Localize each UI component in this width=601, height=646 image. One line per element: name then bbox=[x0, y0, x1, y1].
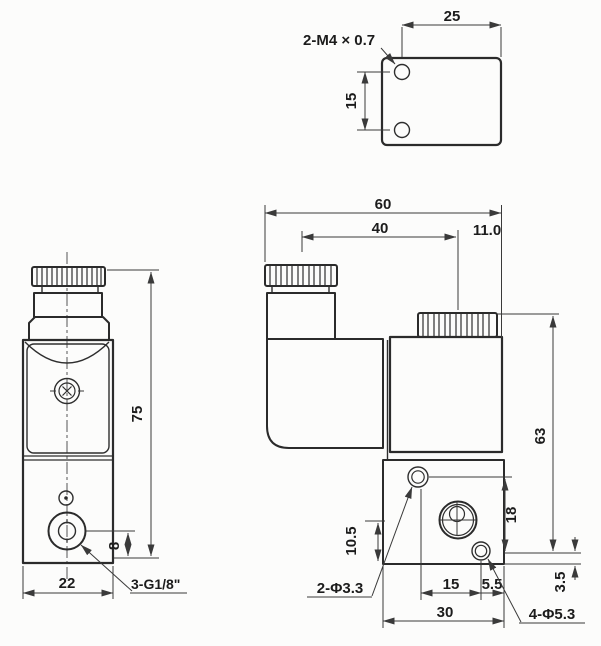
dim-60-label: 60 bbox=[375, 196, 392, 213]
top-view-dimensions: 25 15 2-M4 × 0.7 bbox=[303, 8, 501, 130]
thread-callout-label: 2-M4 × 0.7 bbox=[303, 32, 375, 49]
side-connector-neck bbox=[272, 286, 329, 293]
front-body bbox=[23, 340, 113, 563]
front-pilot-hole-dot bbox=[64, 496, 68, 500]
top-view-thread-hole-1 bbox=[395, 65, 410, 80]
front-body-seam bbox=[23, 456, 113, 460]
dim-22-label: 22 bbox=[59, 575, 76, 592]
side-pilot-hole-inner bbox=[412, 471, 424, 483]
side-coil-cap bbox=[418, 313, 497, 337]
top-view bbox=[382, 58, 501, 145]
dim-11-label: 11.0 bbox=[473, 222, 501, 239]
side-connector-cap-knurl bbox=[270, 266, 331, 285]
dim-40-label: 40 bbox=[372, 220, 389, 237]
front-cap-knurl-lines bbox=[37, 268, 101, 285]
dim-30-label: 30 bbox=[437, 604, 454, 621]
technical-drawing-page: 25 15 2-M4 × 0.7 75 bbox=[0, 0, 601, 646]
dim-25-extension-lines bbox=[402, 27, 501, 57]
dim-18-label: 18 bbox=[503, 507, 520, 524]
dim-105-label: 10.5 bbox=[343, 526, 360, 555]
side-connector-housing bbox=[267, 339, 383, 448]
dim-8-label: 8 bbox=[106, 542, 123, 550]
dim-75-label: 75 bbox=[129, 406, 146, 423]
dim-15-label: 15 bbox=[343, 93, 360, 110]
front-connector-cap bbox=[32, 267, 105, 286]
dim-25-label: 25 bbox=[444, 8, 461, 25]
front-connector-base bbox=[29, 317, 109, 340]
dim-55-label: 5.5 bbox=[482, 576, 503, 593]
dim-35-label: 3.5 bbox=[552, 572, 569, 593]
dim-63-label: 63 bbox=[532, 428, 549, 445]
port-callout-leader bbox=[81, 545, 132, 591]
front-connector-neck bbox=[42, 286, 98, 293]
side-mount-hole-inner bbox=[475, 545, 486, 556]
dim-15b-label: 15 bbox=[443, 576, 460, 593]
valve-dimension-drawing: 25 15 2-M4 × 0.7 75 bbox=[0, 0, 601, 646]
side-coil-cap-knurl bbox=[423, 314, 489, 336]
mount-callout-label: 4-Φ5.3 bbox=[529, 606, 576, 623]
dim-15-extension-lines bbox=[357, 72, 390, 130]
port-callout-label: 3-G1/8" bbox=[131, 576, 180, 592]
front-view bbox=[23, 252, 113, 582]
pilot-callout-label: 2-Φ3.3 bbox=[317, 580, 364, 597]
side-pilot-hole-outer bbox=[408, 467, 428, 487]
side-coil-body bbox=[390, 337, 502, 452]
side-connector-block bbox=[267, 293, 335, 339]
top-view-thread-hole-2 bbox=[395, 123, 410, 138]
top-view-body bbox=[382, 58, 501, 145]
front-connector-block bbox=[34, 293, 102, 317]
side-view bbox=[265, 265, 504, 564]
